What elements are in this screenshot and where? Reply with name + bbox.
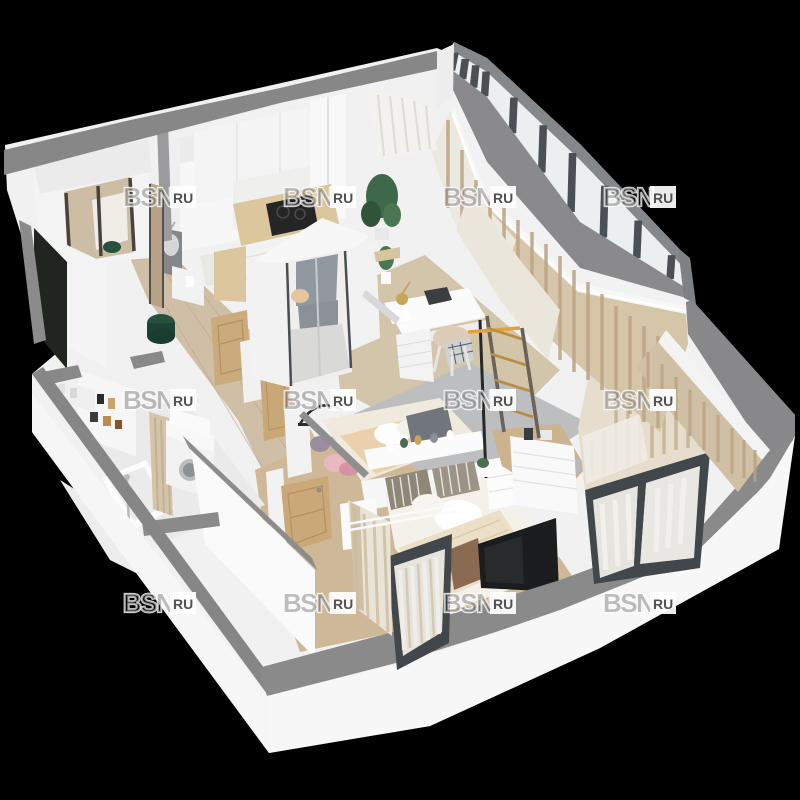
- svg-text:RU: RU: [493, 393, 513, 409]
- svg-text:RU: RU: [333, 596, 353, 612]
- svg-text:BSN: BSN: [603, 385, 654, 415]
- svg-text:BSN: BSN: [123, 182, 174, 212]
- svg-text:BSN: BSN: [283, 182, 334, 212]
- svg-text:RU: RU: [173, 393, 193, 409]
- svg-text:BSN: BSN: [443, 588, 494, 618]
- svg-text:RU: RU: [333, 393, 353, 409]
- svg-text:BSN: BSN: [123, 385, 174, 415]
- svg-text:RU: RU: [173, 190, 193, 206]
- svg-text:BSN: BSN: [443, 385, 494, 415]
- svg-text:BSN: BSN: [123, 588, 174, 618]
- svg-text:RU: RU: [493, 596, 513, 612]
- svg-text:RU: RU: [173, 596, 193, 612]
- svg-text:RU: RU: [653, 190, 673, 206]
- svg-text:BSN: BSN: [283, 385, 334, 415]
- svg-text:RU: RU: [653, 596, 673, 612]
- svg-text:RU: RU: [493, 190, 513, 206]
- svg-text:BSN: BSN: [603, 588, 654, 618]
- svg-text:BSN: BSN: [283, 588, 334, 618]
- svg-text:BSN: BSN: [443, 182, 494, 212]
- svg-text:RU: RU: [333, 190, 353, 206]
- svg-text:BSN: BSN: [603, 182, 654, 212]
- svg-text:RU: RU: [653, 393, 673, 409]
